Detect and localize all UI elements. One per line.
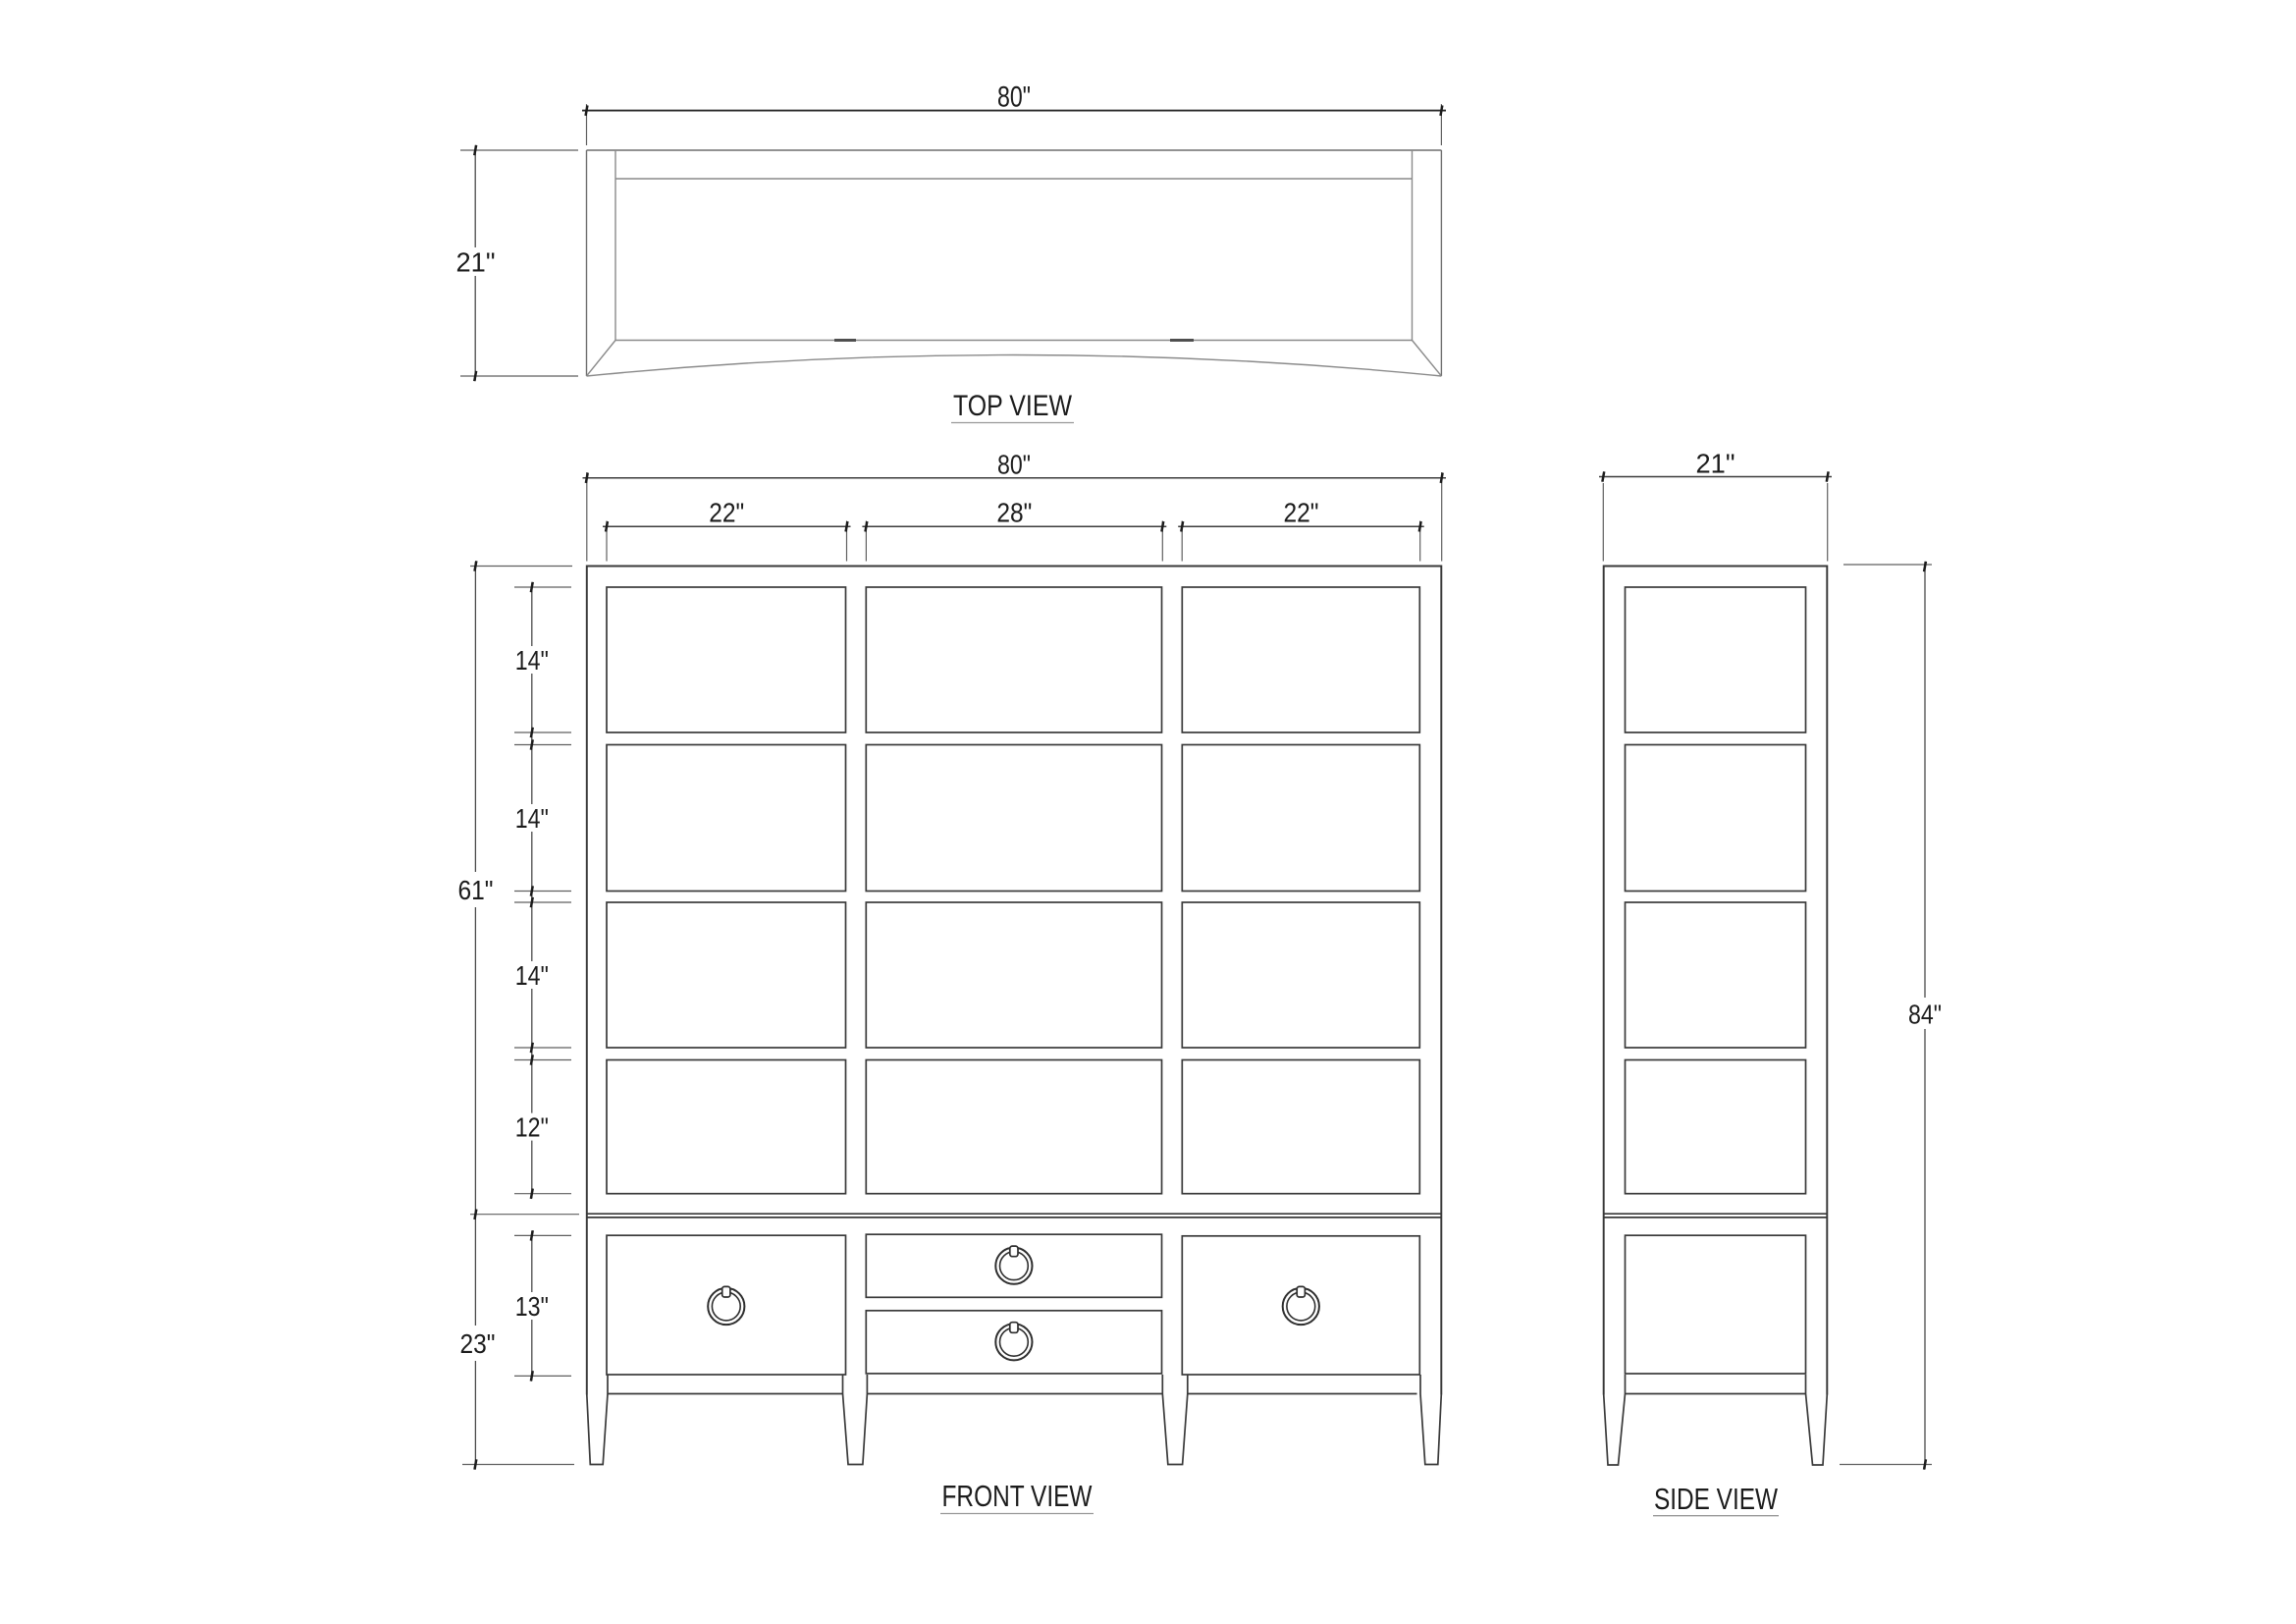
svg-text:FRONT VIEW: FRONT VIEW [942,1479,1094,1513]
svg-text:84": 84" [1908,1000,1942,1030]
svg-text:80": 80" [997,81,1031,114]
svg-text:22": 22" [1283,498,1318,528]
svg-text:23": 23" [460,1328,496,1359]
svg-text:28": 28" [996,498,1032,528]
svg-text:12": 12" [515,1112,549,1143]
svg-text:SIDE VIEW: SIDE VIEW [1654,1482,1779,1516]
svg-text:13": 13" [515,1291,549,1322]
svg-text:22": 22" [709,498,744,528]
svg-text:14": 14" [515,803,549,834]
svg-text:14": 14" [515,645,549,676]
svg-text:21": 21" [1696,449,1735,479]
svg-text:61": 61" [458,875,494,905]
svg-text:14": 14" [515,960,549,991]
svg-text:TOP VIEW: TOP VIEW [953,390,1073,422]
svg-text:80": 80" [997,450,1031,480]
svg-text:21": 21" [456,247,496,278]
